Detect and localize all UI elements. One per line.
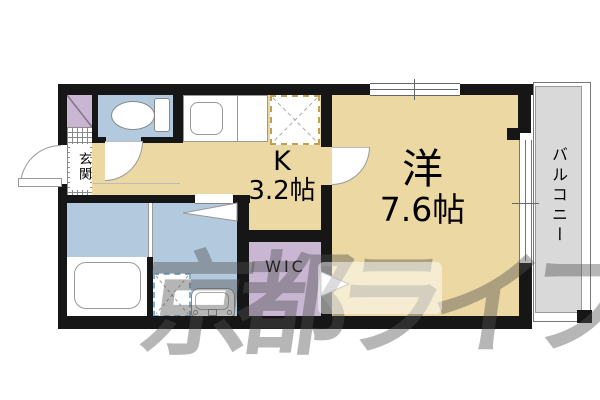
wall-balcony-block-right [577, 310, 592, 323]
kitchen-letter: K [230, 147, 334, 177]
washbasin-foot-left [193, 310, 198, 315]
wall-left-lower [58, 184, 67, 329]
counter-divider [237, 96, 238, 141]
kitchen-label: K 3.2帖 [230, 147, 334, 205]
wic-floor [249, 242, 322, 317]
floor-plan: 玄関 K 3.2帖 洋 7.6帖 WIC バルコニー 京都ライフ [0, 0, 600, 400]
wall-left-upper [58, 84, 67, 145]
wall-mainroom-right-jog [507, 128, 520, 140]
door-direction-triangle-icon [180, 200, 240, 225]
entrance-label: 玄関 [70, 144, 90, 190]
wall-top-left-segment [58, 84, 371, 95]
washbasin-inner-line [195, 292, 229, 310]
wall-kitchen-mainroom-upper [321, 95, 332, 147]
wall-toilet-left [92, 84, 98, 143]
wall-mainroom-right-upper [518, 84, 531, 133]
wall-bottom [58, 316, 532, 329]
bathroom-floor [67, 203, 148, 257]
wall-toilet-bottom-b [141, 137, 183, 143]
wall-toilet-bottom-a [92, 137, 106, 143]
wic-entry-arrow-icon [318, 270, 352, 298]
sliding-window-mid-line [525, 140, 526, 261]
bathtub-icon [74, 262, 141, 309]
entrance-step-line [93, 183, 180, 184]
kitchen-counter [183, 95, 268, 142]
wall-balcony-block-left [519, 263, 532, 318]
wic-label: WIC [249, 258, 322, 276]
shoe-cabinet-diagonal [67, 95, 92, 127]
washbasin-foot-right [227, 310, 232, 315]
toilet-icon [97, 95, 173, 143]
wall-toilet-right [173, 84, 183, 143]
entrance-door-leaf [18, 178, 62, 187]
toilet-tank [154, 98, 170, 132]
washing-machine-space-icon [153, 273, 191, 317]
wall-bath-top [58, 195, 195, 203]
balcony-sliding-window-icon [519, 140, 532, 263]
kitchen-sink-icon [190, 102, 223, 135]
toilet-bowl [111, 101, 155, 130]
kitchen-size: 3.2帖 [230, 177, 334, 206]
wall-wic-top [237, 230, 322, 242]
window-tick [414, 79, 415, 100]
sliding-window-tick [512, 203, 539, 204]
wall-divider-bath-wash-lower [147, 257, 153, 317]
shoe-cabinet [67, 95, 92, 127]
balcony-label: バルコニー [549, 146, 567, 271]
main-room-label: 洋 7.6帖 [345, 147, 500, 228]
window-icon [370, 83, 460, 96]
main-room-name: 洋 [345, 147, 500, 192]
refrigerator-space-icon [270, 95, 320, 145]
main-room-size: 7.6帖 [345, 192, 500, 228]
divider-bath-wash-upper [148, 203, 153, 257]
washbasin-drain [208, 309, 217, 316]
washbasin-icon [191, 288, 235, 317]
